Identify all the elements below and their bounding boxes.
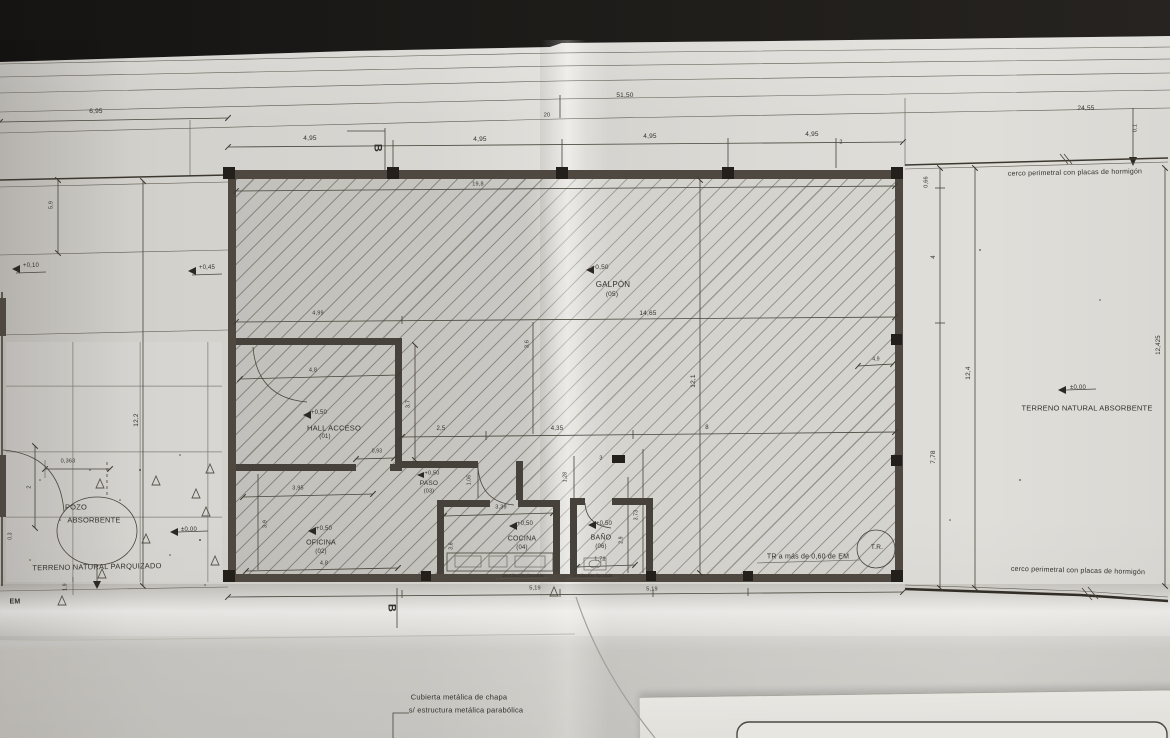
photo-of-floor-plan: 51,50206,9524,554,954,954,954,9520,10,66… [0, 0, 1170, 738]
plan-linework [0, 0, 1170, 738]
